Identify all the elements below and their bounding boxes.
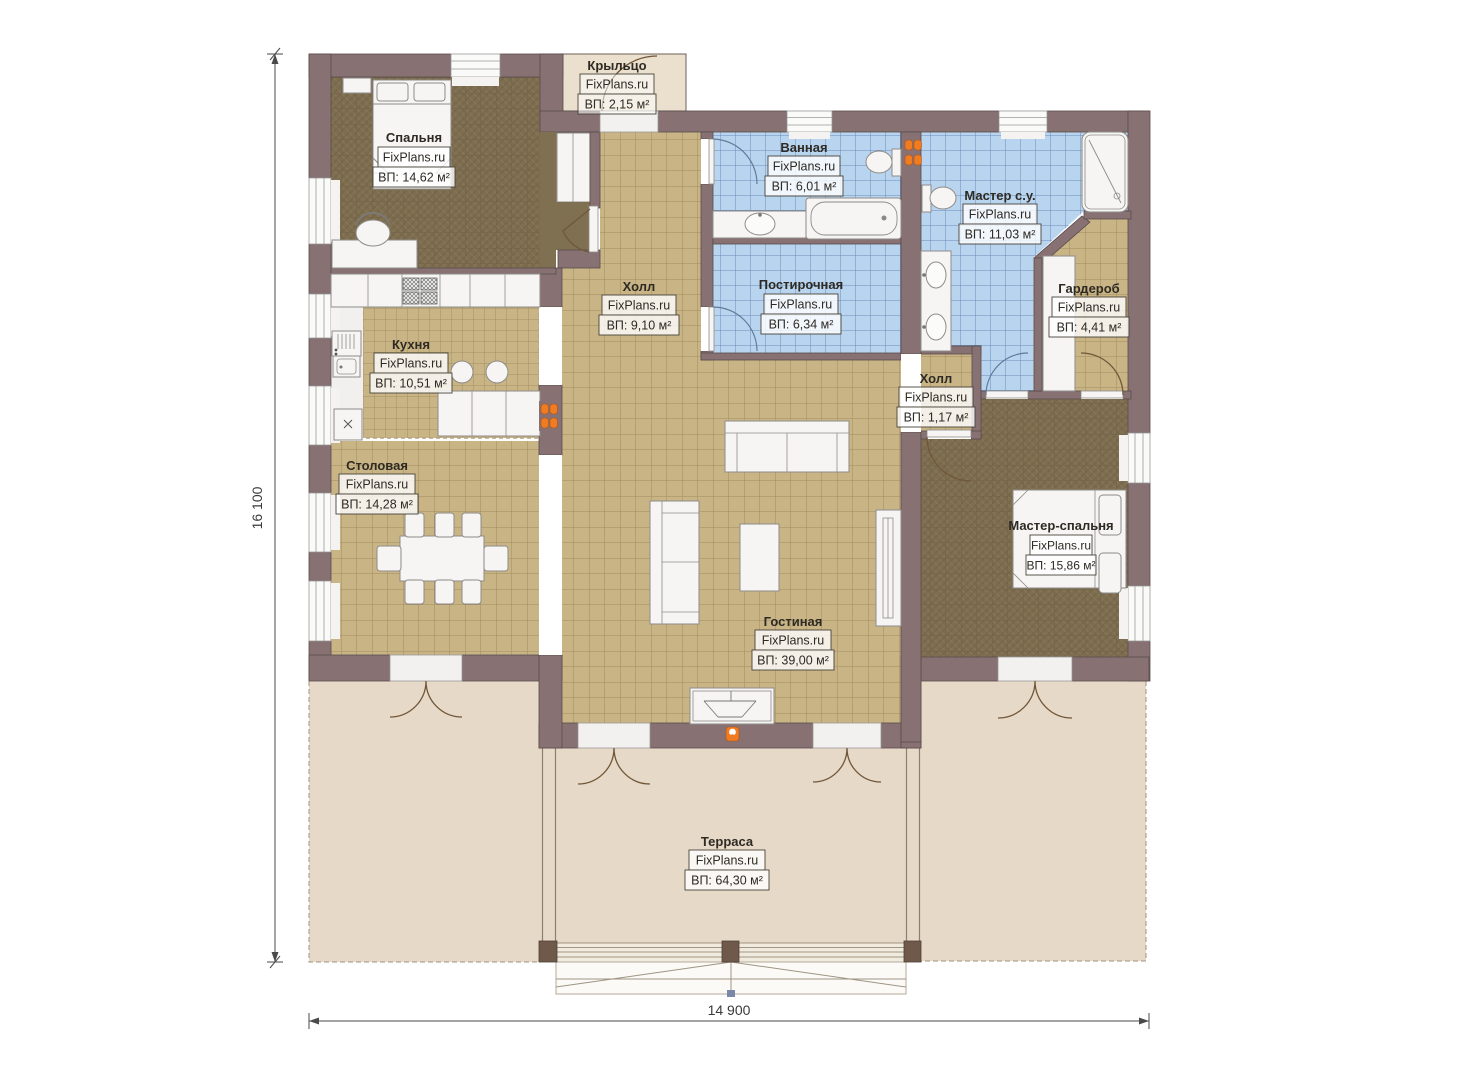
svg-text:Спальня: Спальня [386,130,442,145]
svg-text:FixPlans.ru: FixPlans.ru [383,151,446,165]
svg-text:FixPlans.ru: FixPlans.ru [770,298,833,312]
svg-text:ВП: 1,17 м²: ВП: 1,17 м² [904,411,969,425]
svg-text:FixPlans.ru: FixPlans.ru [380,357,443,371]
svg-text:Мастер-спальня: Мастер-спальня [1008,518,1113,533]
svg-text:FixPlans.ru: FixPlans.ru [969,208,1032,222]
svg-text:FixPlans.ru: FixPlans.ru [1058,301,1121,315]
svg-text:ВП: 14,62 м²: ВП: 14,62 м² [378,171,450,185]
svg-text:Постирочная: Постирочная [759,277,843,292]
svg-text:FixPlans.ru: FixPlans.ru [608,299,671,313]
svg-text:ВП: 39,00 м²: ВП: 39,00 м² [757,654,829,668]
svg-text:Ванная: Ванная [780,140,827,155]
svg-text:ВП: 2,15 м²: ВП: 2,15 м² [585,98,650,112]
svg-text:ВП: 4,41 м²: ВП: 4,41 м² [1057,321,1122,335]
svg-text:ВП: 6,34 м²: ВП: 6,34 м² [769,318,834,332]
svg-text:FixPlans.ru: FixPlans.ru [586,78,649,92]
svg-text:16 100: 16 100 [249,486,265,529]
svg-text:ВП: 9,10 м²: ВП: 9,10 м² [607,319,672,333]
svg-text:ВП: 64,30 м²: ВП: 64,30 м² [691,874,763,888]
svg-text:ВП: 11,03 м²: ВП: 11,03 м² [965,228,1036,242]
svg-text:FixPlans.ru: FixPlans.ru [905,391,968,405]
svg-text:ВП: 10,51 м²: ВП: 10,51 м² [375,377,447,391]
svg-text:FixPlans.ru: FixPlans.ru [1031,539,1091,553]
svg-text:14 900: 14 900 [708,1002,751,1018]
svg-text:Столовая: Столовая [346,458,408,473]
svg-text:Кухня: Кухня [392,337,430,352]
svg-text:FixPlans.ru: FixPlans.ru [696,854,759,868]
svg-text:ВП: 6,01 м²: ВП: 6,01 м² [772,180,837,194]
svg-text:Холл: Холл [623,279,656,294]
svg-text:FixPlans.ru: FixPlans.ru [346,478,409,492]
svg-text:Мастер с.у.: Мастер с.у. [964,188,1035,203]
svg-text:ВП: 15,86 м²: ВП: 15,86 м² [1027,559,1096,573]
svg-text:FixPlans.ru: FixPlans.ru [762,634,825,648]
svg-text:Гардероб: Гардероб [1058,281,1119,296]
svg-text:Холл: Холл [920,371,953,386]
svg-text:Гостиная: Гостиная [764,614,823,629]
svg-text:ВП: 14,28 м²: ВП: 14,28 м² [341,498,413,512]
svg-text:FixPlans.ru: FixPlans.ru [773,160,836,174]
svg-text:Терраса: Терраса [701,834,754,849]
svg-text:Крыльцо: Крыльцо [587,58,646,73]
